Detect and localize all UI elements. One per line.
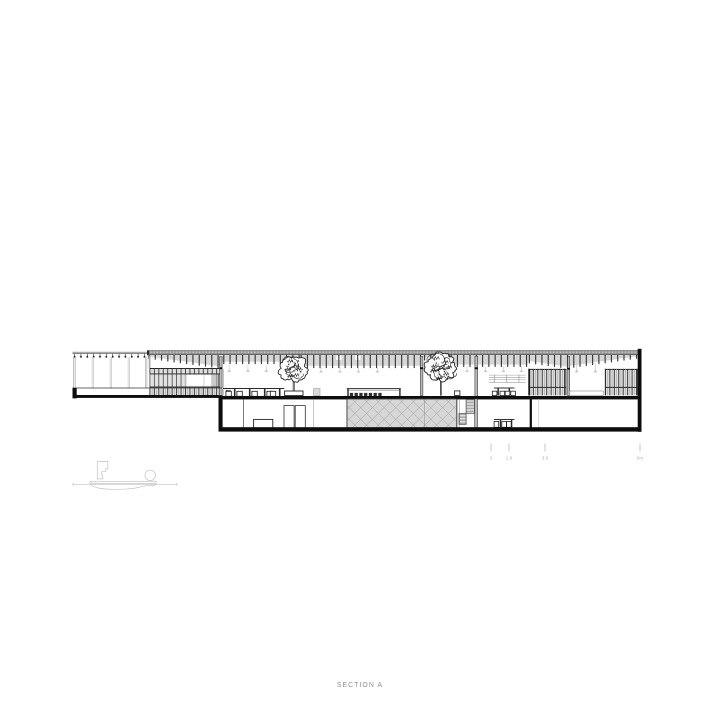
svg-text:0: 0 [490, 456, 493, 462]
svg-text:9m: 9m [637, 456, 644, 462]
svg-text:SECTION A: SECTION A [337, 682, 383, 689]
svg-text:1.8: 1.8 [506, 456, 513, 462]
svg-text:3.6: 3.6 [542, 456, 549, 462]
